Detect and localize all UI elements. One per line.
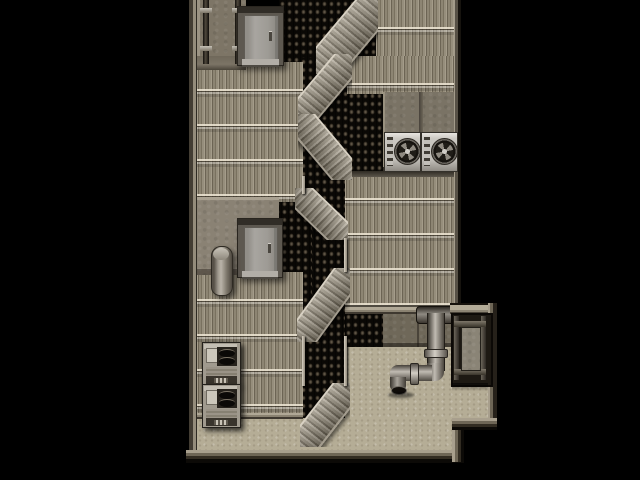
stair-band xyxy=(295,188,348,240)
box-label xyxy=(214,420,228,425)
box-label xyxy=(214,378,228,383)
hatch-top-band xyxy=(238,7,283,13)
vent-shaft-upper-right xyxy=(348,92,385,172)
hatch-top-band xyxy=(238,219,282,225)
roof-right-mid xyxy=(345,171,458,313)
border-left xyxy=(186,0,197,458)
box-grille xyxy=(206,367,237,376)
roof-right-top-a xyxy=(376,0,458,60)
hatch-door[interactable] xyxy=(244,227,278,273)
border-extension-bottom xyxy=(452,418,497,430)
hatch-sill xyxy=(242,59,279,67)
stair-flight-2[interactable] xyxy=(298,54,352,118)
box-grille xyxy=(206,409,237,418)
gate-panel xyxy=(461,327,481,371)
platform-top-seam xyxy=(197,197,279,200)
hatch-door[interactable] xyxy=(244,15,279,61)
stair-railing xyxy=(344,238,347,272)
duct-pipe xyxy=(211,246,233,296)
gate-shadow xyxy=(452,383,488,391)
stair-flight-6[interactable] xyxy=(300,383,350,447)
pipe-bracket xyxy=(200,46,212,51)
vent-oval xyxy=(219,399,235,407)
elevator-hatch-mid[interactable] xyxy=(237,218,283,278)
stair-railing xyxy=(344,336,347,386)
stair-railing xyxy=(302,336,305,386)
duct-pipe-cap xyxy=(213,248,229,260)
stair-railing xyxy=(302,176,305,194)
stair-flight-4[interactable] xyxy=(295,188,348,240)
iron-gate[interactable] xyxy=(451,313,493,387)
pipe-flange xyxy=(424,349,448,358)
box-vent-panel xyxy=(217,347,237,366)
ac-fan-unit-2 xyxy=(421,132,458,172)
game-viewport[interactable] xyxy=(0,0,640,480)
compressor-box-2[interactable] xyxy=(202,384,241,428)
pipe-flange xyxy=(410,363,419,385)
pipe-shadow xyxy=(388,392,414,398)
stair-flight-3[interactable] xyxy=(298,114,352,180)
border-bottom xyxy=(186,450,464,463)
compressor-box-1[interactable] xyxy=(202,342,241,386)
stair-flight-5[interactable] xyxy=(297,268,350,342)
stair-band xyxy=(298,114,352,180)
ac-slits xyxy=(387,137,393,166)
pipe-bracket xyxy=(200,8,212,13)
roof-left-upper xyxy=(197,62,303,202)
fan-icon xyxy=(394,138,421,165)
vent-oval xyxy=(219,357,235,365)
stair-band xyxy=(297,268,350,342)
stair-band xyxy=(300,383,350,447)
hatch-sill xyxy=(242,271,278,279)
vent-shaft-lower-right xyxy=(345,313,385,347)
stair-band xyxy=(298,54,352,118)
drain-pipe xyxy=(388,303,454,398)
vent-oval xyxy=(219,391,235,399)
door-handle xyxy=(268,243,271,253)
ac-slits xyxy=(424,137,430,166)
elevator-hatch-top[interactable] xyxy=(237,6,284,66)
door-handle xyxy=(269,31,272,41)
fan-icon xyxy=(431,138,458,165)
vent-oval xyxy=(219,349,235,357)
ac-fan-unit-1 xyxy=(384,132,421,172)
box-vent-panel xyxy=(217,389,237,408)
